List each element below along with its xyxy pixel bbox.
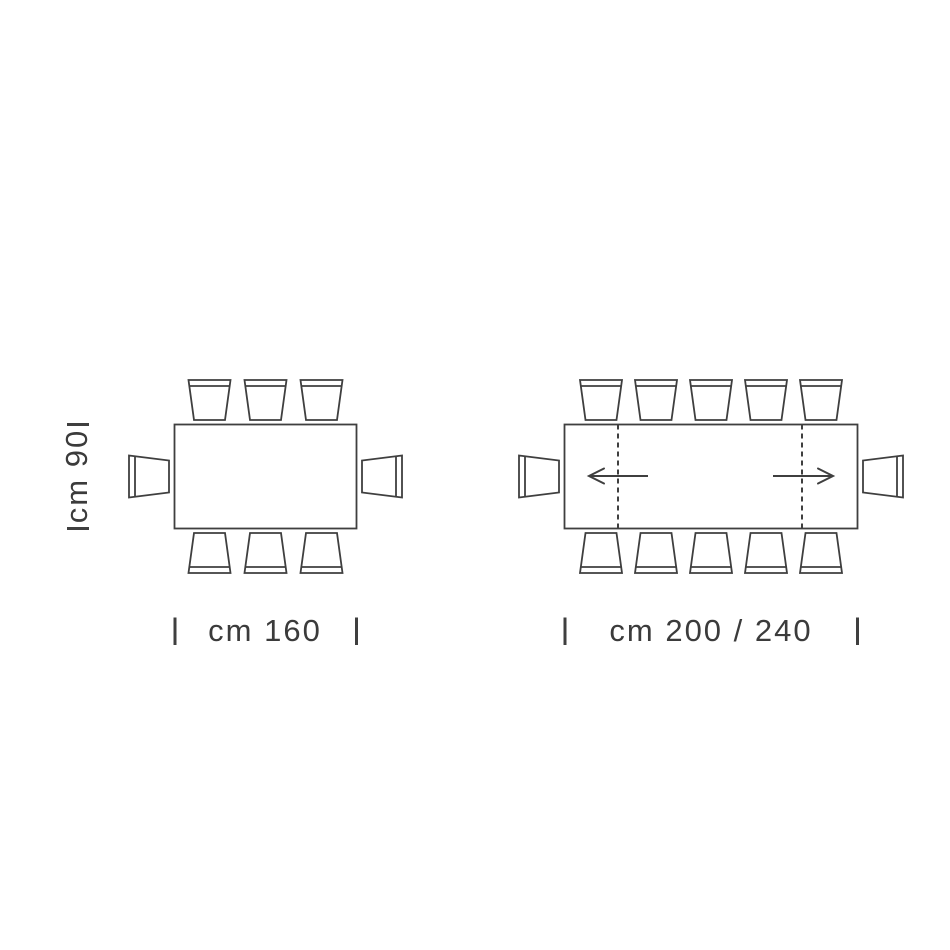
chair-top [189,380,231,420]
chair-bottom [745,533,787,573]
chair-end-right [863,456,903,498]
depth-dimension-label: cm 90 [57,376,97,576]
chair-top [690,380,732,420]
chair-top [301,380,343,420]
chair-top [800,380,842,420]
chair-end-left [129,456,169,498]
chair-end-left [519,456,559,498]
chair-bottom [580,533,622,573]
chair-bottom [800,533,842,573]
table-200-240-width-label: cm 200 / 240 [561,611,861,651]
chair-bottom [189,533,231,573]
table-dimension-drawing: cm 90 cm 160 cm 200 / 240 [0,0,950,950]
chair-bottom [635,533,677,573]
chair-top [580,380,622,420]
chair-bottom [301,533,343,573]
diagram-graphics [0,0,950,950]
table-160-width-label: cm 160 [115,611,415,651]
chair-top [245,380,287,420]
table-160-outline [175,425,357,529]
chair-top [635,380,677,420]
chair-top [745,380,787,420]
chair-end-right [362,456,402,498]
chair-bottom [690,533,732,573]
chair-bottom [245,533,287,573]
